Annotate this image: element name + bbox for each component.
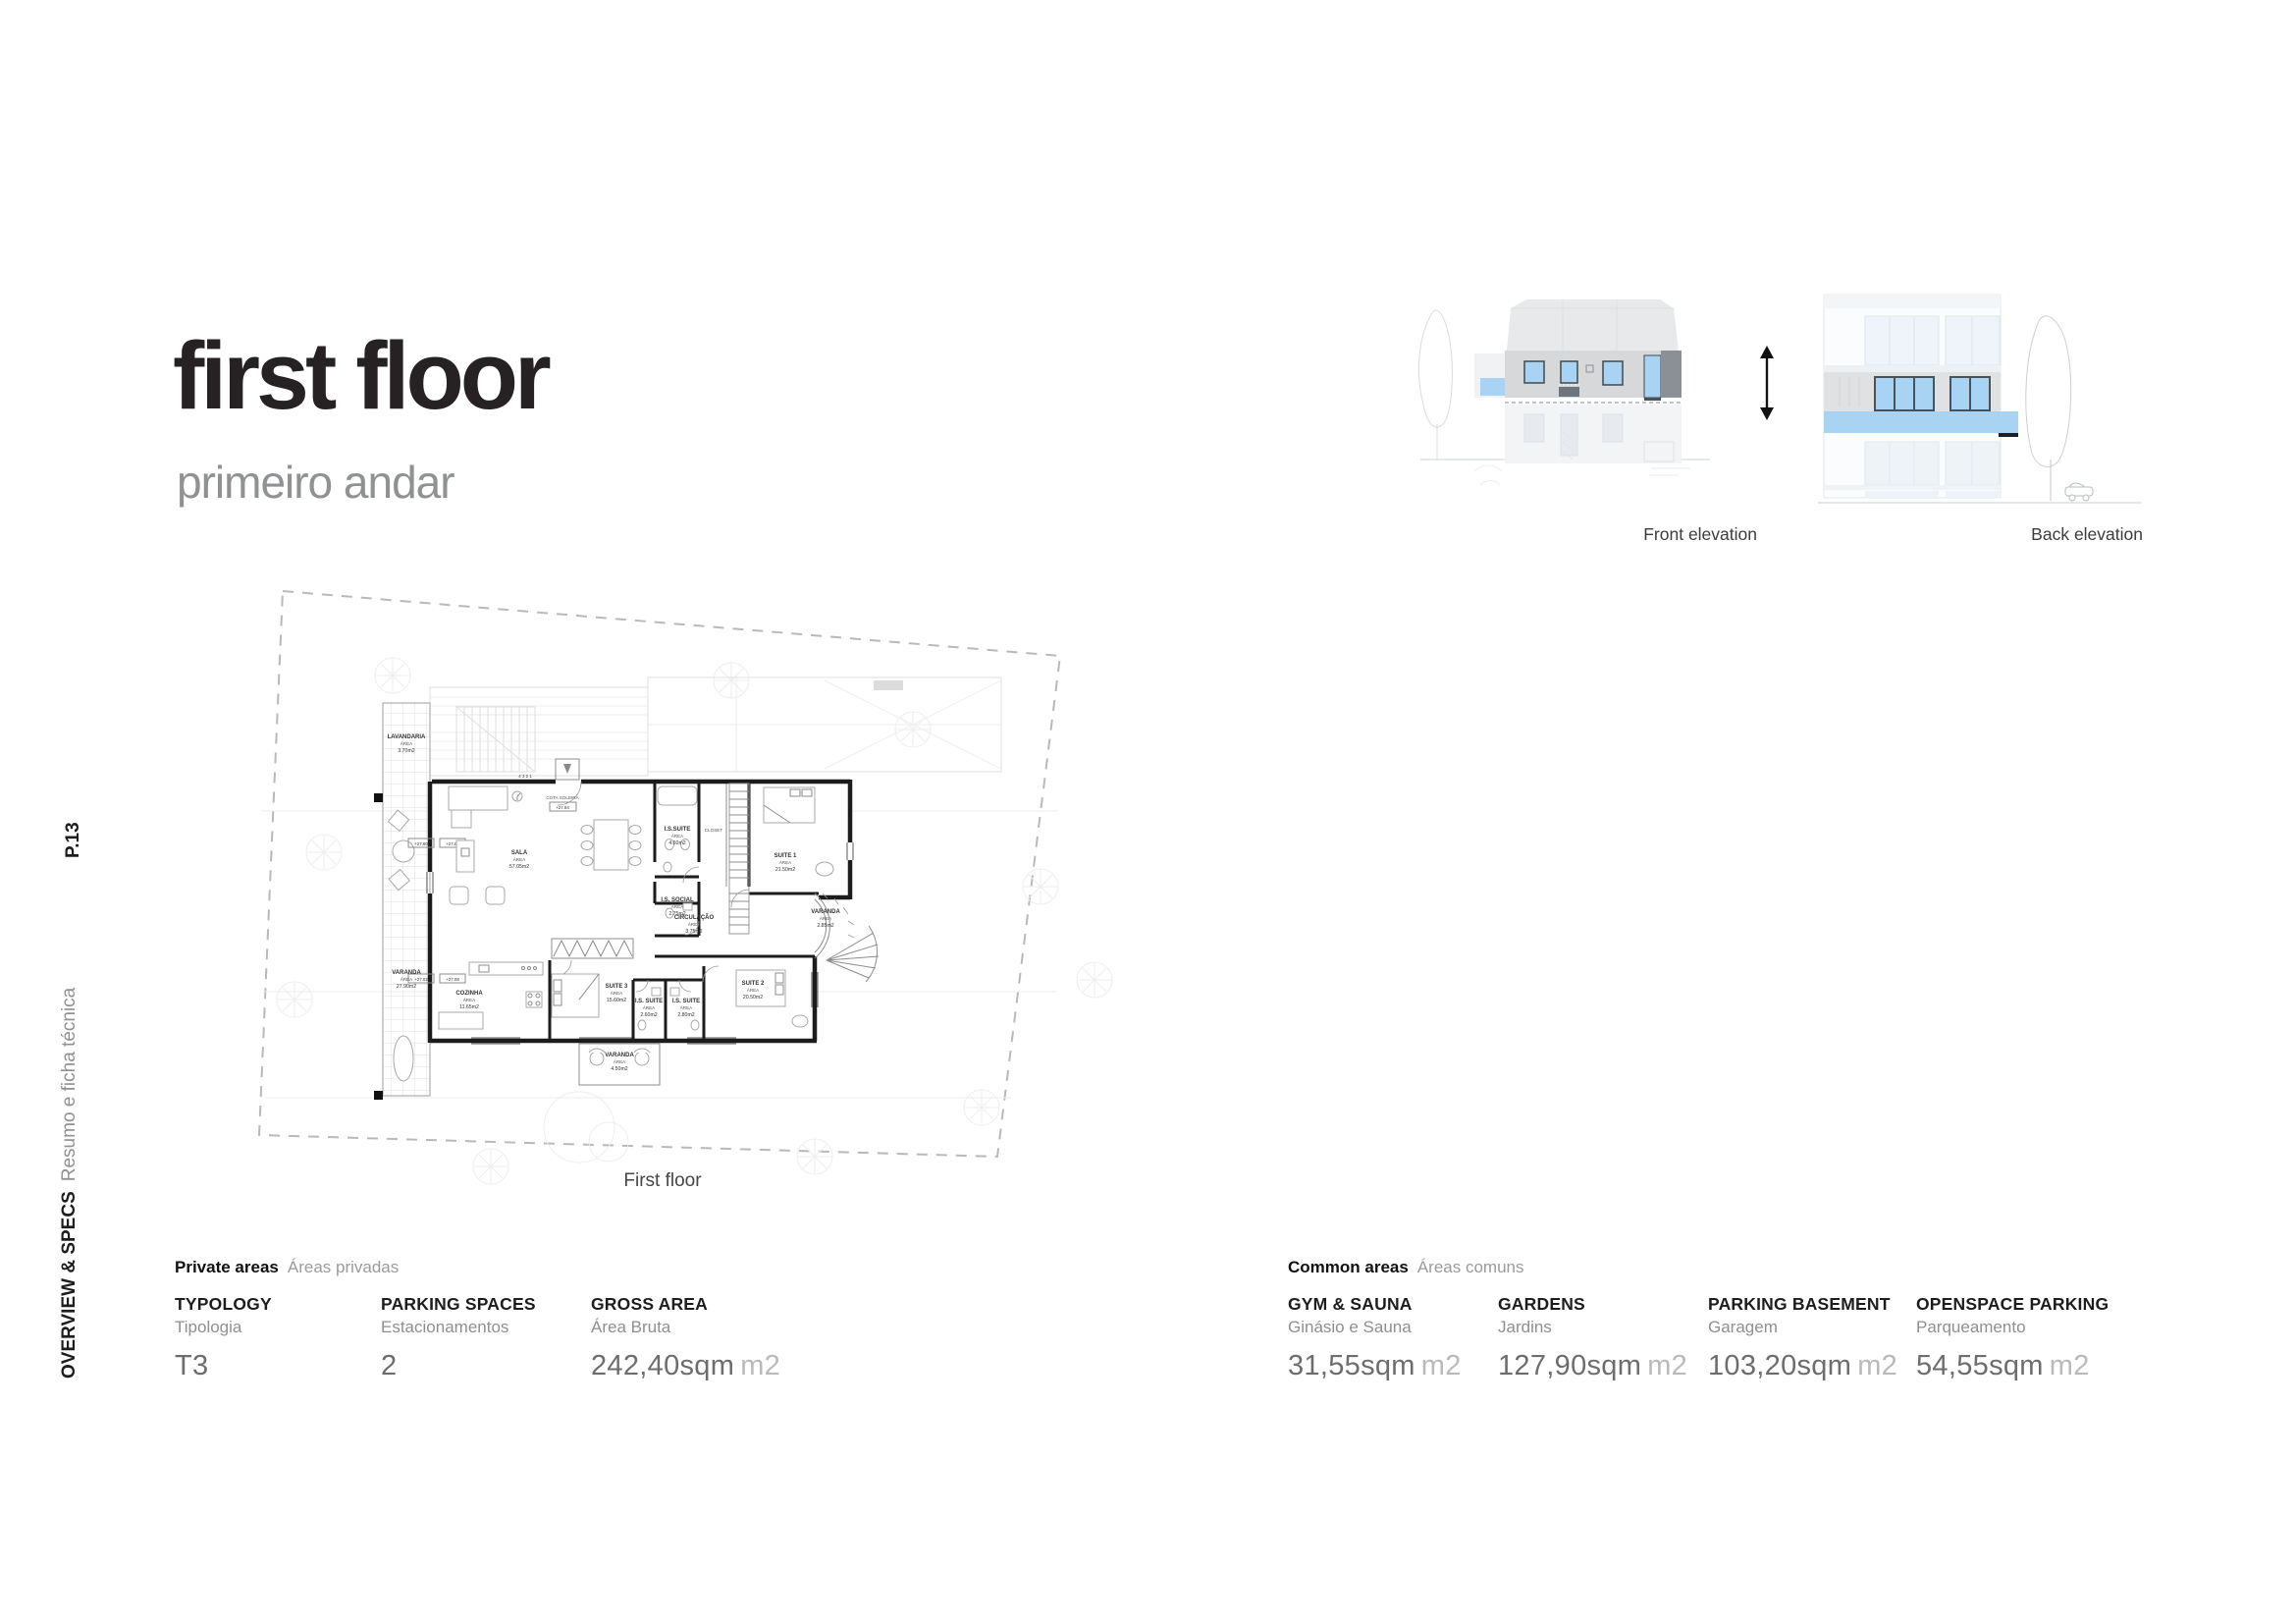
spec-parking-spaces: PARKING SPACES Estacionamentos 2 xyxy=(381,1294,536,1382)
tree-icon xyxy=(1418,310,1452,460)
cota-value: +27.94 xyxy=(556,805,569,810)
svg-text:ÁREA: ÁREA xyxy=(400,740,413,746)
spec-parking-basement: PARKING BASEMENT Garagem 103,20sqmm2 xyxy=(1708,1294,1897,1382)
balcony-slab xyxy=(1824,411,2018,433)
svg-text:VARANDA: VARANDA xyxy=(392,970,421,976)
svg-text:CLOSET: CLOSET xyxy=(705,828,723,833)
svg-text:I.S.SUITE: I.S.SUITE xyxy=(665,827,691,833)
svg-text:SALA: SALA xyxy=(511,850,528,856)
cota-label: COTA SOLEIRA xyxy=(546,795,579,800)
balcony-band-left xyxy=(1480,378,1505,396)
west-balcony-strip xyxy=(374,703,430,1100)
svg-text:SUITE 1: SUITE 1 xyxy=(774,853,797,859)
spec-gross-area: GROSS AREA Área Bruta 242,40sqmm2 xyxy=(591,1294,780,1382)
back-elevation-drawing xyxy=(1818,267,2147,514)
svg-text:3.70m2: 3.70m2 xyxy=(398,748,414,754)
svg-text:+27.08: +27.08 xyxy=(446,977,459,982)
front-elevation-drawing xyxy=(1415,267,1715,514)
gym-sauna-value: 31,55sqmm2 xyxy=(1288,1350,1462,1382)
svg-text:SUITE 2: SUITE 2 xyxy=(742,981,765,987)
svg-text:4.60m2: 4.60m2 xyxy=(668,840,685,846)
svg-text:15.60m2: 15.60m2 xyxy=(607,998,626,1003)
svg-text:21.50m2: 21.50m2 xyxy=(775,867,795,873)
parking-basement-value: 103,20sqmm2 xyxy=(1708,1350,1897,1382)
dark-volume xyxy=(1661,351,1682,398)
svg-text:4.50m2: 4.50m2 xyxy=(611,1066,627,1072)
svg-text:ÁREA: ÁREA xyxy=(671,833,684,839)
double-arrow-icon xyxy=(1756,346,1778,420)
svg-text:LAVANDARIA: LAVANDARIA xyxy=(388,734,426,740)
window-faded xyxy=(1865,442,1939,485)
svg-text:ÁREA: ÁREA xyxy=(463,997,476,1002)
plan-caption: First floor xyxy=(584,1170,741,1192)
page-number: P.13 xyxy=(63,822,84,858)
back-elevation-label: Back elevation xyxy=(1966,524,2143,545)
parking-spaces-value: 2 xyxy=(381,1350,536,1382)
window xyxy=(1561,361,1577,383)
svg-text:COZINHA: COZINHA xyxy=(455,991,483,997)
svg-text:VARANDA: VARANDA xyxy=(811,909,840,915)
section-label-pt: Resumo e ficha técnica xyxy=(59,988,80,1182)
svg-text:+27.02: +27.02 xyxy=(414,977,428,982)
window xyxy=(1524,361,1544,383)
svg-text:ÁREA: ÁREA xyxy=(513,856,526,862)
svg-text:3.75m2: 3.75m2 xyxy=(685,929,702,935)
gardens-value: 127,90sqmm2 xyxy=(1498,1350,1687,1382)
svg-text:ÁREA: ÁREA xyxy=(671,903,684,909)
floor-plan-drawing: 4 3 2 1 xyxy=(226,548,1129,1196)
spiral-stair xyxy=(827,926,879,982)
svg-text:ÁREA: ÁREA xyxy=(688,921,701,927)
svg-text:ÁREA: ÁREA xyxy=(400,976,413,982)
window-group xyxy=(1875,377,1934,410)
common-areas-header: Common areasÁreas comuns xyxy=(1288,1258,1524,1277)
svg-text:CIRCULAÇÃO: CIRCULAÇÃO xyxy=(674,914,715,921)
window-faded xyxy=(1865,316,1939,365)
upper-terrace xyxy=(648,677,1001,772)
svg-text:ÁREA: ÁREA xyxy=(611,990,623,996)
spec-openspace-parking: OPENSPACE PARKING Parqueamento 54,55sqmm… xyxy=(1916,1294,2109,1382)
window-tall xyxy=(1644,355,1661,398)
svg-text:2.80m2: 2.80m2 xyxy=(677,1012,694,1018)
svg-text:ÁREA: ÁREA xyxy=(820,915,832,921)
south-balcony xyxy=(579,1044,660,1085)
svg-text:ÁREA: ÁREA xyxy=(680,1004,693,1010)
svg-text:ÁREA: ÁREA xyxy=(614,1058,626,1064)
svg-text:+27.60: +27.60 xyxy=(414,841,428,846)
spec-typology: TYPOLOGY Tipologia T3 xyxy=(175,1294,272,1382)
stair-numbers: 4 3 2 1 xyxy=(518,774,532,779)
svg-text:ÁREA: ÁREA xyxy=(747,987,760,993)
spec-gym-sauna: GYM & SAUNA Ginásio e Sauna 31,55sqmm2 xyxy=(1288,1294,1462,1382)
brochure-page: first floor primeiro andar P.13 OVERVIEW… xyxy=(0,0,2296,1624)
private-areas-header: Private areasÁreas privadas xyxy=(175,1258,399,1277)
railing xyxy=(1559,387,1579,397)
openspace-parking-value: 54,55sqmm2 xyxy=(1916,1350,2109,1382)
section-label: OVERVIEW & SPECSResumo e ficha técnica xyxy=(59,988,80,1379)
front-elevation-label: Front elevation xyxy=(1580,524,1757,545)
car-icon xyxy=(2065,483,2093,501)
tree-icon xyxy=(2026,316,2071,501)
svg-text:2.60m2: 2.60m2 xyxy=(640,1012,657,1018)
svg-text:ÁREA: ÁREA xyxy=(779,859,792,865)
svg-text:I.S. SOCIAL: I.S. SOCIAL xyxy=(661,897,694,903)
svg-text:11.65m2: 11.65m2 xyxy=(459,1004,479,1010)
typology-value: T3 xyxy=(175,1350,272,1382)
gross-area-value: 242,40sqmm2 xyxy=(591,1350,780,1382)
svg-text:20.50m2: 20.50m2 xyxy=(743,995,763,1001)
spec-gardens: GARDENS Jardins 127,90sqmm2 xyxy=(1498,1294,1687,1382)
svg-text:27.90m2: 27.90m2 xyxy=(397,984,416,990)
deck-and-stair: 4 3 2 1 xyxy=(430,687,648,779)
svg-text:I.S. SUITE: I.S. SUITE xyxy=(635,999,663,1004)
svg-text:57.05m2: 57.05m2 xyxy=(509,864,529,870)
svg-text:ÁREA: ÁREA xyxy=(643,1004,656,1010)
page-subtitle: primeiro andar xyxy=(177,456,454,509)
svg-text:VARANDA: VARANDA xyxy=(605,1053,634,1058)
svg-text:2.85m2: 2.85m2 xyxy=(817,923,833,929)
upper-floor-faded xyxy=(1507,299,1679,351)
window xyxy=(1603,361,1623,385)
page-title: first floor xyxy=(173,326,548,426)
svg-text:I.S. SUITE: I.S. SUITE xyxy=(672,999,700,1004)
east-balcony xyxy=(815,893,879,982)
section-label-en: OVERVIEW & SPECS xyxy=(59,1191,80,1379)
svg-text:SUITE 3: SUITE 3 xyxy=(606,984,628,990)
